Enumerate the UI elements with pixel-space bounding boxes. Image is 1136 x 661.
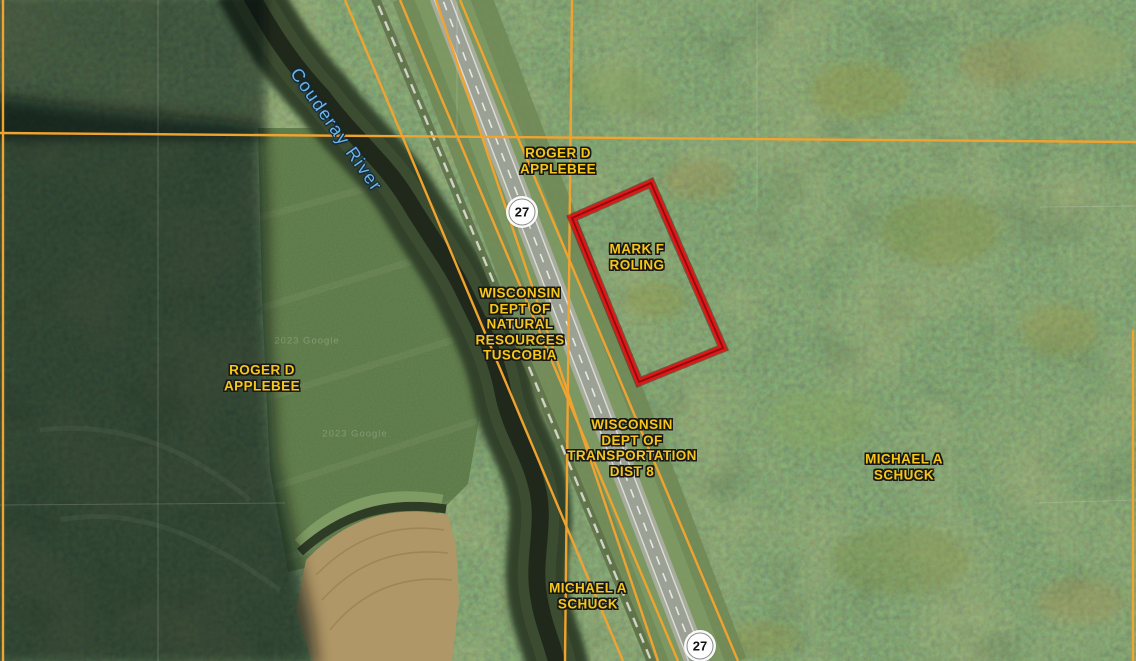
- map-canvas[interactable]: Couderay River ROGER D APPLEBEE MARK F R…: [0, 0, 1136, 661]
- route-number: 27: [693, 639, 707, 654]
- route-number: 27: [515, 205, 529, 220]
- highway-27-shield-north: 27: [509, 199, 536, 226]
- imagery-attribution-watermark: 2023 Google: [322, 429, 387, 440]
- highway-27-shield-south: 27: [687, 633, 714, 660]
- parcel-label-dot[interactable]: WISCONSIN DEPT OF TRANSPORTATION DIST 8: [567, 417, 697, 479]
- satellite-basemap: [0, 0, 1136, 661]
- parcel-label-applebee-west[interactable]: ROGER D APPLEBEE: [224, 363, 300, 394]
- parcel-label-roling[interactable]: MARK F ROLING: [610, 242, 665, 273]
- parcel-label-applebee-north[interactable]: ROGER D APPLEBEE: [520, 146, 596, 177]
- parcel-label-dnr[interactable]: WISCONSIN DEPT OF NATURAL RESOURCES TUSC…: [475, 285, 564, 363]
- imagery-attribution-watermark: 2023 Google: [274, 336, 339, 347]
- plowed-field: [296, 499, 459, 661]
- parcel-label-schuck-south[interactable]: MICHAEL A SCHUCK: [549, 581, 627, 612]
- parcel-label-schuck-east[interactable]: MICHAEL A SCHUCK: [865, 452, 943, 483]
